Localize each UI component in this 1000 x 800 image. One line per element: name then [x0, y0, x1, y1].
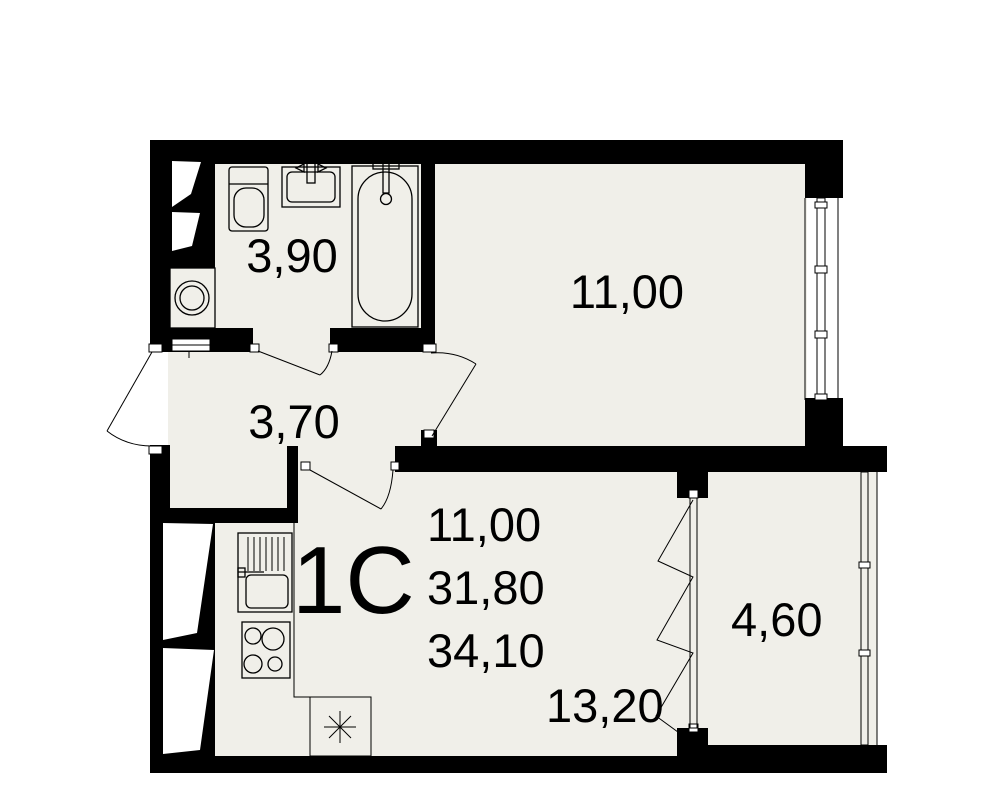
door-jamb	[301, 462, 310, 470]
wall-segment	[838, 446, 887, 472]
door-leaf	[107, 352, 152, 431]
area-total-label: 34,10	[427, 624, 545, 677]
door-jamb	[689, 490, 698, 498]
door-jamb	[250, 344, 259, 352]
wall-segment	[330, 328, 433, 352]
wall-segment	[805, 140, 843, 198]
living-area-label: 11,00	[570, 265, 684, 318]
door-jamb	[391, 462, 399, 470]
window-mullion	[859, 562, 870, 568]
wall-segment	[150, 140, 807, 164]
balcony-area-label: 4,60	[731, 593, 822, 646]
door-jamb	[424, 430, 434, 438]
window-mullion	[815, 202, 827, 208]
wall-segment	[678, 745, 887, 773]
living-room-window	[805, 198, 838, 400]
entrance-door	[107, 344, 162, 454]
apartment-type-label: 1С	[292, 527, 415, 634]
floor-plan-svg: 3,90 11,00 3,70 1С 11,00 31,80 34,10 13,…	[0, 0, 1000, 800]
window-mullion	[815, 266, 827, 273]
window-mullion	[815, 394, 827, 400]
door-jamb	[329, 344, 338, 352]
door-swing-arc	[107, 431, 152, 446]
washer-outline	[170, 268, 215, 328]
wall-segment	[150, 756, 708, 773]
washing-machine-icon	[170, 268, 215, 328]
bathroom-area-label: 3,90	[246, 229, 337, 282]
area-secondary-label: 31,80	[427, 561, 545, 614]
window-glazing	[817, 198, 825, 400]
hallway-area-label: 3,70	[248, 395, 339, 448]
kitchen-area-label: 13,20	[546, 679, 664, 732]
floor-plan: 3,90 11,00 3,70 1С 11,00 31,80 34,10 13,…	[0, 0, 1000, 800]
wall-segment	[421, 160, 435, 352]
wall-segment	[150, 140, 215, 268]
window-mullion	[815, 331, 827, 338]
area-living-label: 11,00	[427, 498, 541, 551]
wall-segment	[805, 398, 843, 472]
door-jamb	[149, 446, 162, 454]
window-mullion	[859, 650, 870, 656]
door-jamb	[149, 344, 162, 352]
door-jamb	[423, 344, 436, 352]
